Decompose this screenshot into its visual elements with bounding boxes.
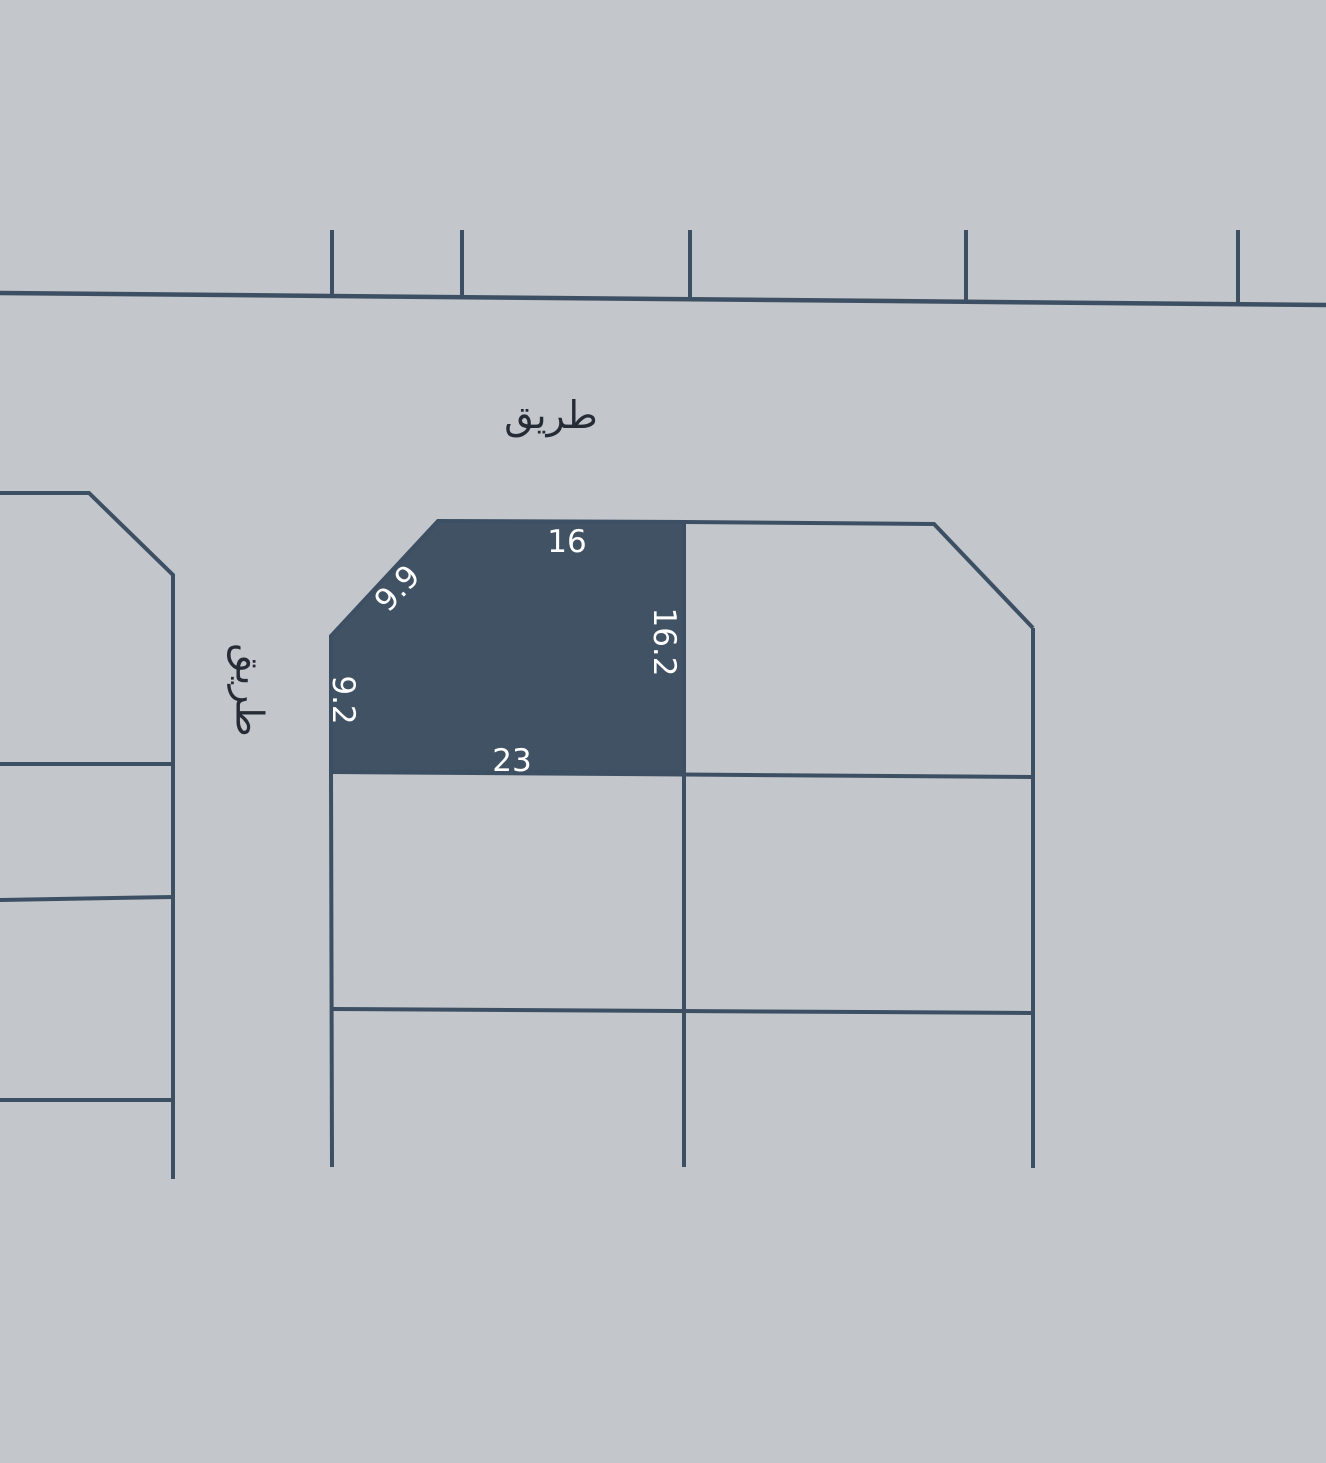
cadastral-map: 16 9.9 16.2 9.2 23 طريق طريق <box>0 0 1326 1463</box>
parcel-divider <box>332 1009 1033 1013</box>
highlighted-plot[interactable] <box>331 521 684 772</box>
left-parcel-block <box>0 493 173 1179</box>
dimension-label-right: 16.2 <box>646 607 682 676</box>
dimension-label-top: 16 <box>547 524 586 560</box>
dimension-label-bottom: 23 <box>492 743 531 779</box>
road-label-left: طريق <box>227 643 272 736</box>
adjacent-plot-boundary <box>684 522 1033 628</box>
parcel-boundary <box>0 493 173 1179</box>
road-label-top: طريق <box>504 393 597 438</box>
dimension-label-left: 9.2 <box>325 675 361 724</box>
parcel-boundary <box>331 772 332 1167</box>
parcel-map-canvas: 16 9.9 16.2 9.2 23 طريق طريق <box>0 0 1326 1463</box>
parcel-divider <box>331 772 1033 777</box>
parcel-divider <box>0 897 173 900</box>
road-ticks <box>332 230 1238 306</box>
top-road-line <box>0 293 1326 305</box>
